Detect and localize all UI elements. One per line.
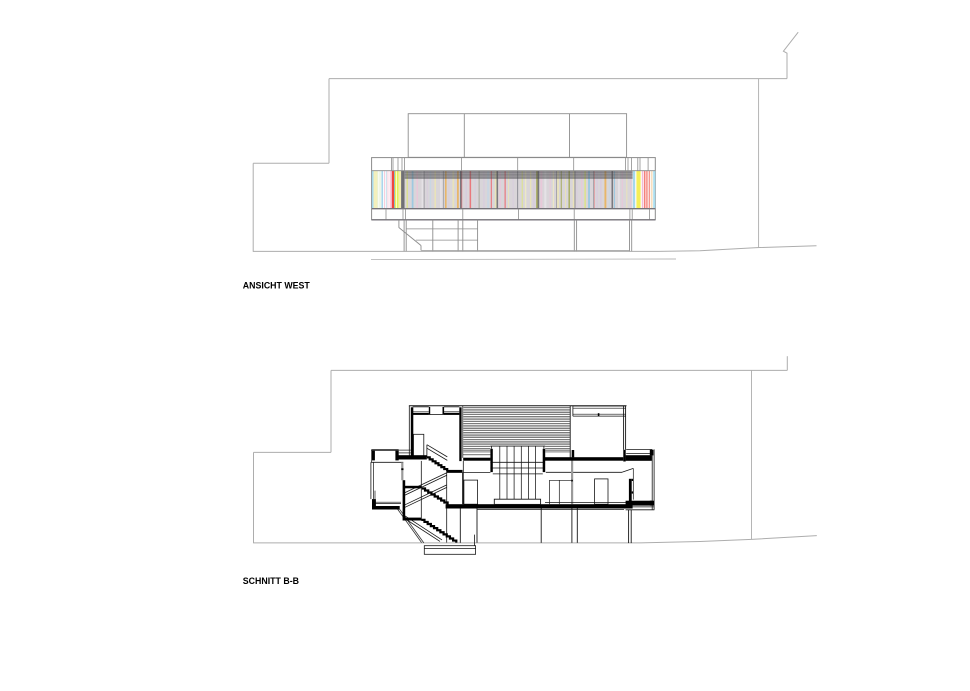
svg-text:ANSICHT WEST: ANSICHT WEST (243, 280, 311, 290)
svg-text:SCHNITT B-B: SCHNITT B-B (243, 576, 299, 586)
